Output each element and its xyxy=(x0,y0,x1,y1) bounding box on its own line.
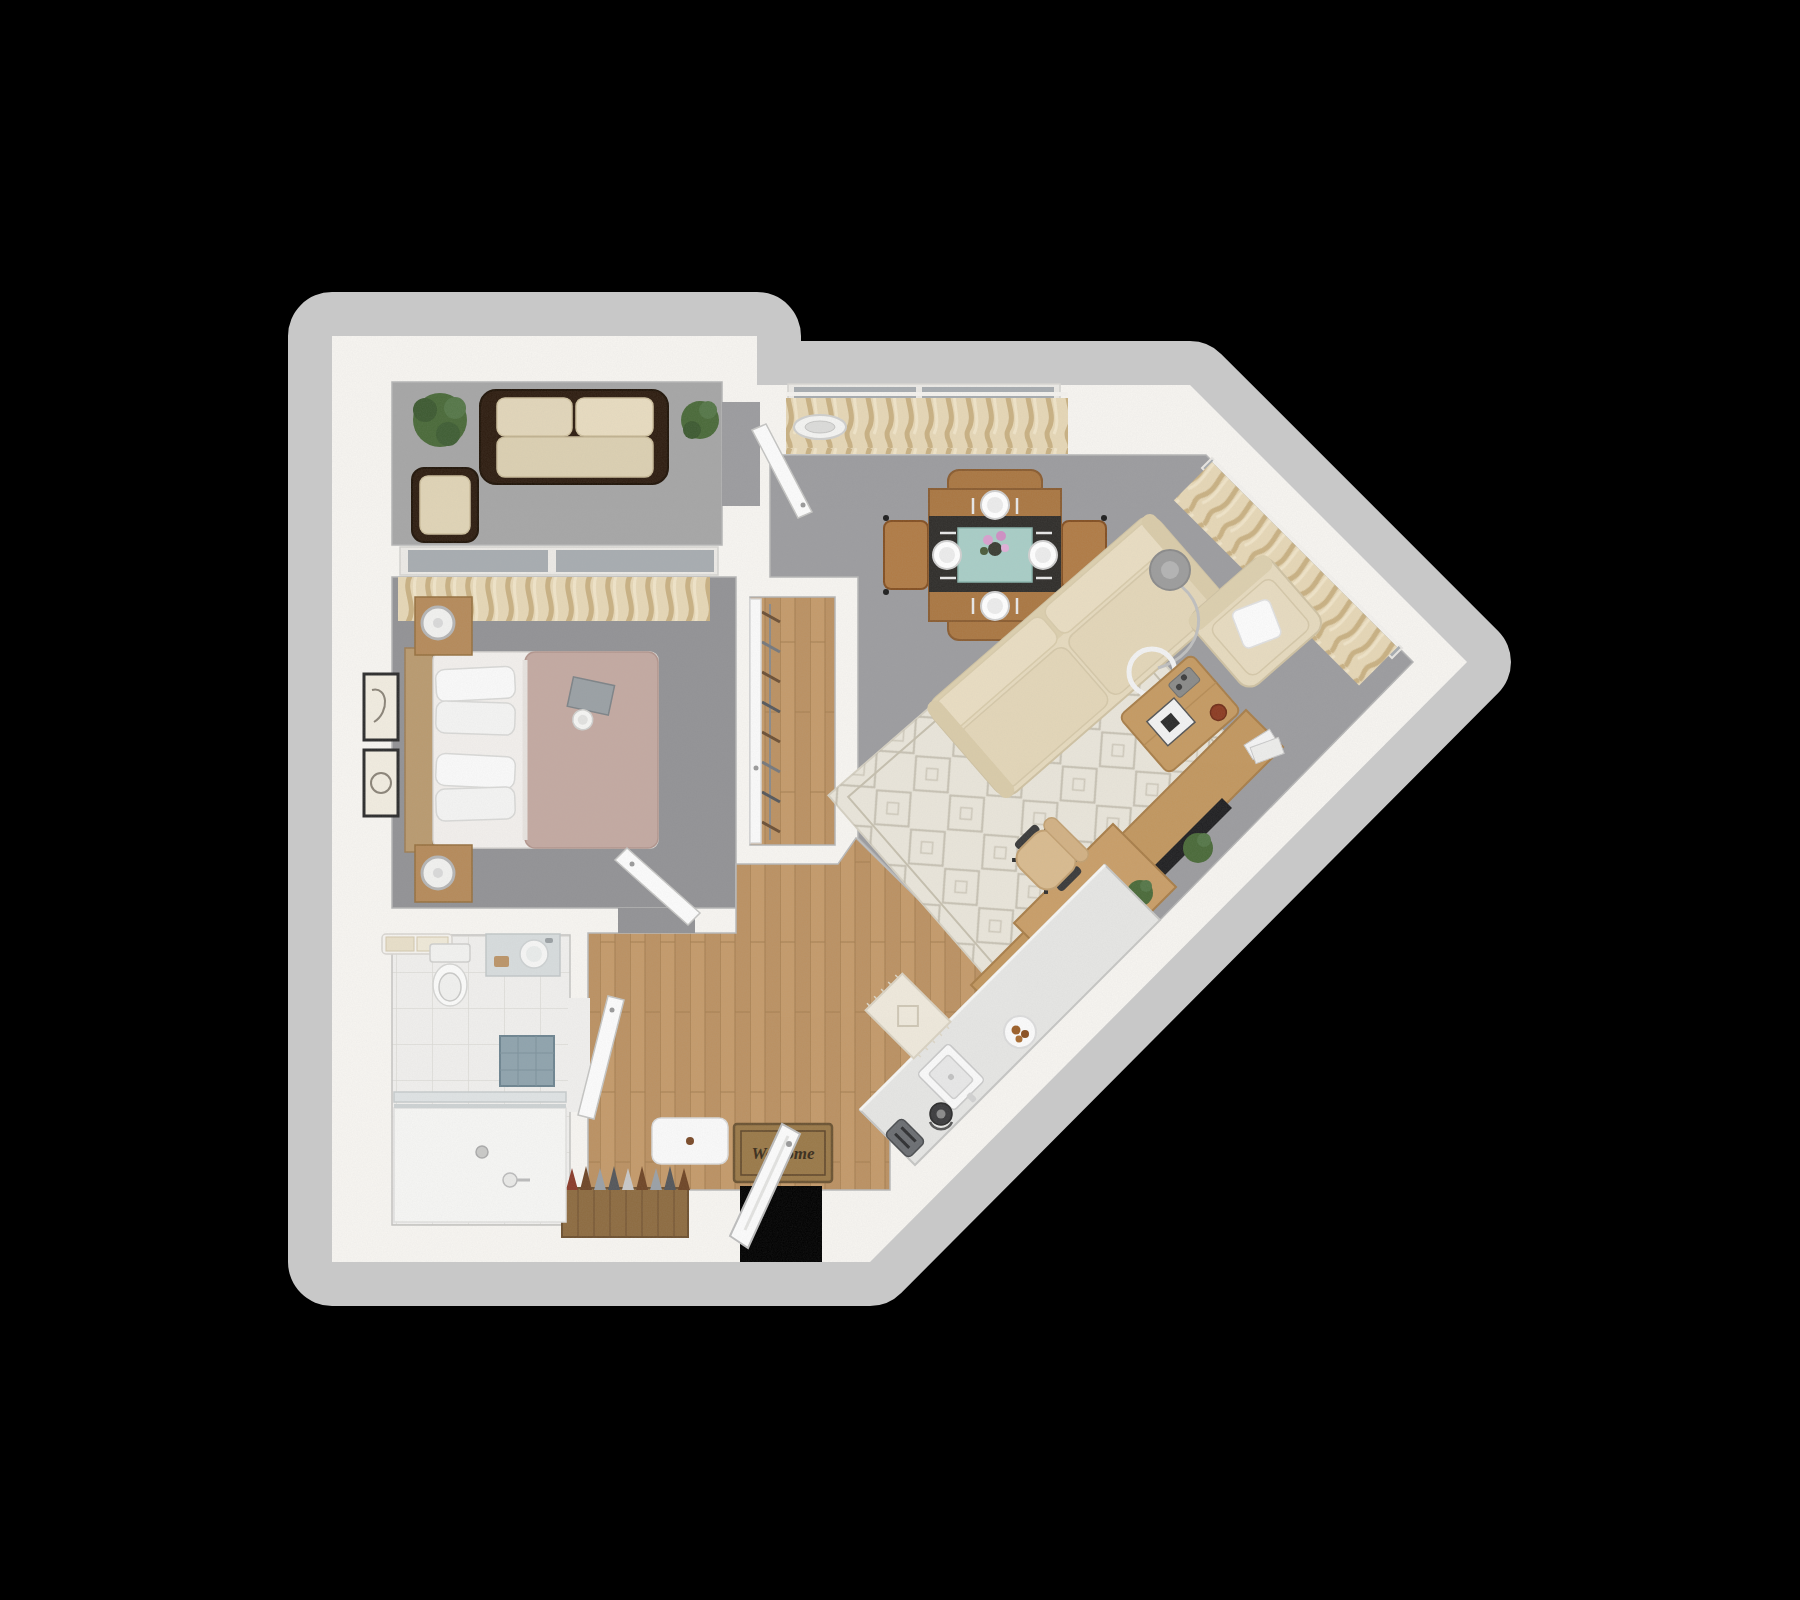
floorplan-image: Welcome xyxy=(0,0,1800,1600)
floorplan-svg: Welcome xyxy=(0,0,1800,1600)
